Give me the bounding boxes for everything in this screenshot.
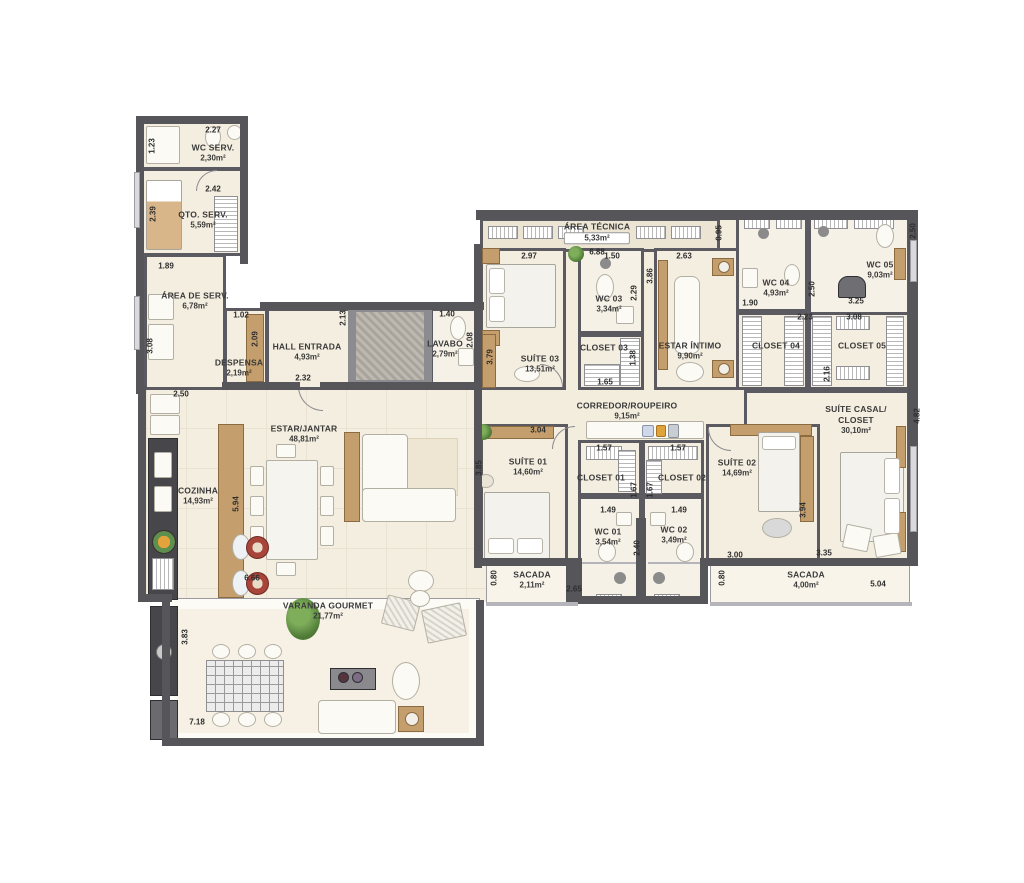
label-cozinha: COZINHA14,93m² [178,485,218,506]
shower-head [818,226,829,237]
dimension: 2.50 [173,390,189,399]
plant-icon [568,246,584,262]
dimension: 2.23 [797,313,813,322]
dimension: 3.83 [181,629,190,645]
sink-icon [616,512,632,526]
balcony-rail [710,602,912,606]
chair [212,712,230,727]
wardrobe-item [642,425,654,437]
label-wc03: WC 033,34m² [596,293,623,314]
dimension: 1.02 [233,311,249,320]
bathtub [838,276,866,298]
label-wc02: WC 023,49m² [661,524,688,545]
pouf [408,570,434,592]
dimension: 2.09 [251,331,260,347]
label-wc05: WC 059,03m² [867,259,894,280]
ac-unit [488,226,518,239]
paella-pan [152,530,176,554]
side-table-top [718,261,730,273]
dimension: 1.40 [439,310,455,319]
label-suite02: SUÍTE 0214,69m² [718,457,756,478]
dimension: 2.32 [295,374,311,383]
varanda-table [206,660,284,712]
dimension: 4.82 [913,408,922,424]
dimension: 3.85 [475,460,484,476]
chair [276,562,296,576]
dimension: 1.57 [596,444,612,453]
bench-sofa [318,700,396,734]
round-chair [392,662,420,700]
dimension: 1.23 [148,138,157,154]
ac-unit [671,226,701,239]
wall [636,518,646,602]
dimension: 1.50 [604,252,620,261]
dimension: 3.79 [486,349,495,365]
chair [320,466,334,486]
pillow [517,538,543,554]
dimension: 7.18 [189,718,205,727]
label-hall: HALL ENTRADA4,93m² [273,341,342,362]
label-closet05: CLOSET 05 [838,340,886,351]
label-qto-serv: QTO. SERV.5,59m² [178,209,228,230]
balcony-rail [486,602,578,606]
side-table-top [405,712,419,726]
label-closet03: CLOSET 03 [580,342,628,353]
shower-head [614,572,626,584]
chair [250,496,264,516]
dimension: 1.65 [597,378,613,387]
shower-glass [648,562,700,564]
shower-glass [582,562,636,564]
dimension: 1.38 [629,350,638,366]
side-table-top [718,363,730,375]
dimension: 0.80 [718,570,727,586]
window [910,446,917,532]
grill-knob [338,672,349,683]
dimension: 6.88 [589,248,605,257]
label-varanda: VARANDA GOURMET21,77m² [283,600,373,621]
nightstand [482,248,500,264]
window [910,240,917,282]
window [134,296,140,350]
dish-red [246,536,269,559]
dimension: 2.42 [205,185,221,194]
dimension: 2.50 [909,223,918,239]
closet-unit [886,316,904,386]
dimension: 1.89 [158,262,174,271]
dimension: 3.25 [848,297,864,306]
closet-unit [836,366,870,380]
sink-icon [742,268,758,288]
oven-grate [152,558,174,590]
dimension: 2.97 [521,252,537,261]
dimension: 2.16 [823,366,832,382]
dimension: 3.35 [816,549,832,558]
wall [320,382,482,390]
dimension: 2.13 [339,310,348,326]
sink-icon [154,452,172,478]
label-suite-casal: SUÍTE CASAL/CLOSET30,10m² [825,404,886,436]
wall [474,558,574,566]
chair [762,518,792,538]
dimension: 0.80 [490,570,499,586]
ac-unit [523,226,553,239]
room-area-serv [144,254,226,390]
dimension: 3.04 [530,426,546,435]
label-sacada1: SACADA2,11m² [513,569,551,590]
toilet-icon [876,224,894,248]
dimension: 2.08 [466,332,475,348]
dimension: 2.27 [205,126,221,135]
armchair [872,532,901,558]
dimension: 3.94 [799,502,808,518]
label-corredor: CORREDOR/ROUPEIRO9,15m² [577,400,678,421]
pillow [884,498,900,534]
dimension: 3.00 [727,551,743,560]
chair [264,644,282,659]
tv-console [344,432,360,522]
label-area-tecnica: ÁREA TÉCNICA5,33m² [564,221,630,244]
pillow [489,268,505,294]
label-closet01: CLOSET 01 [577,472,625,483]
wall [162,598,170,746]
shower-head [758,228,769,239]
dimension: 3.08 [146,338,155,354]
chair [250,466,264,486]
label-estar-jantar: ESTAR/JANTAR48,81m² [271,423,338,444]
wall [222,382,300,390]
label-closet02: CLOSET 02 [658,472,706,483]
label-wc-serv: WC SERV.2,30m² [192,142,235,163]
chair [264,712,282,727]
pillow [489,296,505,322]
dimension: 5.04 [870,580,886,589]
label-suite03: SUÍTE 0313,51m² [521,353,559,374]
dimension: 2.65 [566,585,582,594]
dimension: 2.29 [630,285,639,301]
dimension: 2.50 [808,281,817,297]
dimension: 1.49 [671,506,687,515]
chair [276,444,296,458]
freezer-icon [150,415,180,435]
vanity [894,248,906,280]
chair [212,644,230,659]
chair [238,712,256,727]
dimension: 2.63 [676,252,692,261]
dimension: 2.40 [633,540,642,556]
label-area-serv: ÁREA DE SERV.6,78m² [161,290,228,311]
dimension: 6.66 [244,574,260,583]
wall [136,116,144,394]
label-sacada2: SACADA4,00m² [787,569,825,590]
toilet-icon [450,316,466,340]
dining-table [266,460,318,560]
label-wc01: WC 013,54m² [595,526,622,547]
dimension: 1.67 [646,482,655,498]
chair [320,526,334,546]
armchair [842,524,872,553]
dimension: 1.57 [670,444,686,453]
pillow [488,538,514,554]
chair [238,644,256,659]
ac-unit [636,226,666,239]
label-wc04: WC 044,93m² [763,277,790,298]
label-suite01: SUÍTE 0114,60m² [509,456,547,477]
pillow [762,436,796,450]
wall [162,738,484,746]
pillow [884,458,900,494]
dimension: 2.39 [149,206,158,222]
wardrobe-item [656,425,666,437]
chair [320,496,334,516]
dimension: 1.90 [742,299,758,308]
dimension: 5.94 [232,496,241,512]
label-lavabo: LAVABO2,79m² [427,338,463,359]
shower-head [653,572,665,584]
wall [476,600,484,746]
wall [474,244,482,568]
dimension: 0.95 [715,225,724,241]
pouf [676,362,704,382]
wall [476,210,918,220]
dimension: 3.08 [846,313,862,322]
sink-icon [154,486,172,512]
dimension: 1.67 [630,482,639,498]
wardrobe-item [668,424,679,438]
wall [138,386,146,602]
label-despensa: DESPENSA2,19m² [215,357,263,378]
floor-plan: WC SERV.2,30m² QTO. SERV.5,59m² ÁREA DE … [0,0,1024,883]
grill-knob [352,672,363,683]
round-table [410,590,430,607]
label-closet04: CLOSET 04 [752,340,800,351]
wall [136,116,248,124]
dimension: 3.86 [646,268,655,284]
window [134,172,140,228]
label-estar-intimo: ESTAR ÍNTIMO9,90m² [659,340,722,361]
dimension: 1.49 [600,506,616,515]
sofa-chaise [362,488,456,522]
wall [240,116,248,264]
elevator-shaft [348,304,432,388]
